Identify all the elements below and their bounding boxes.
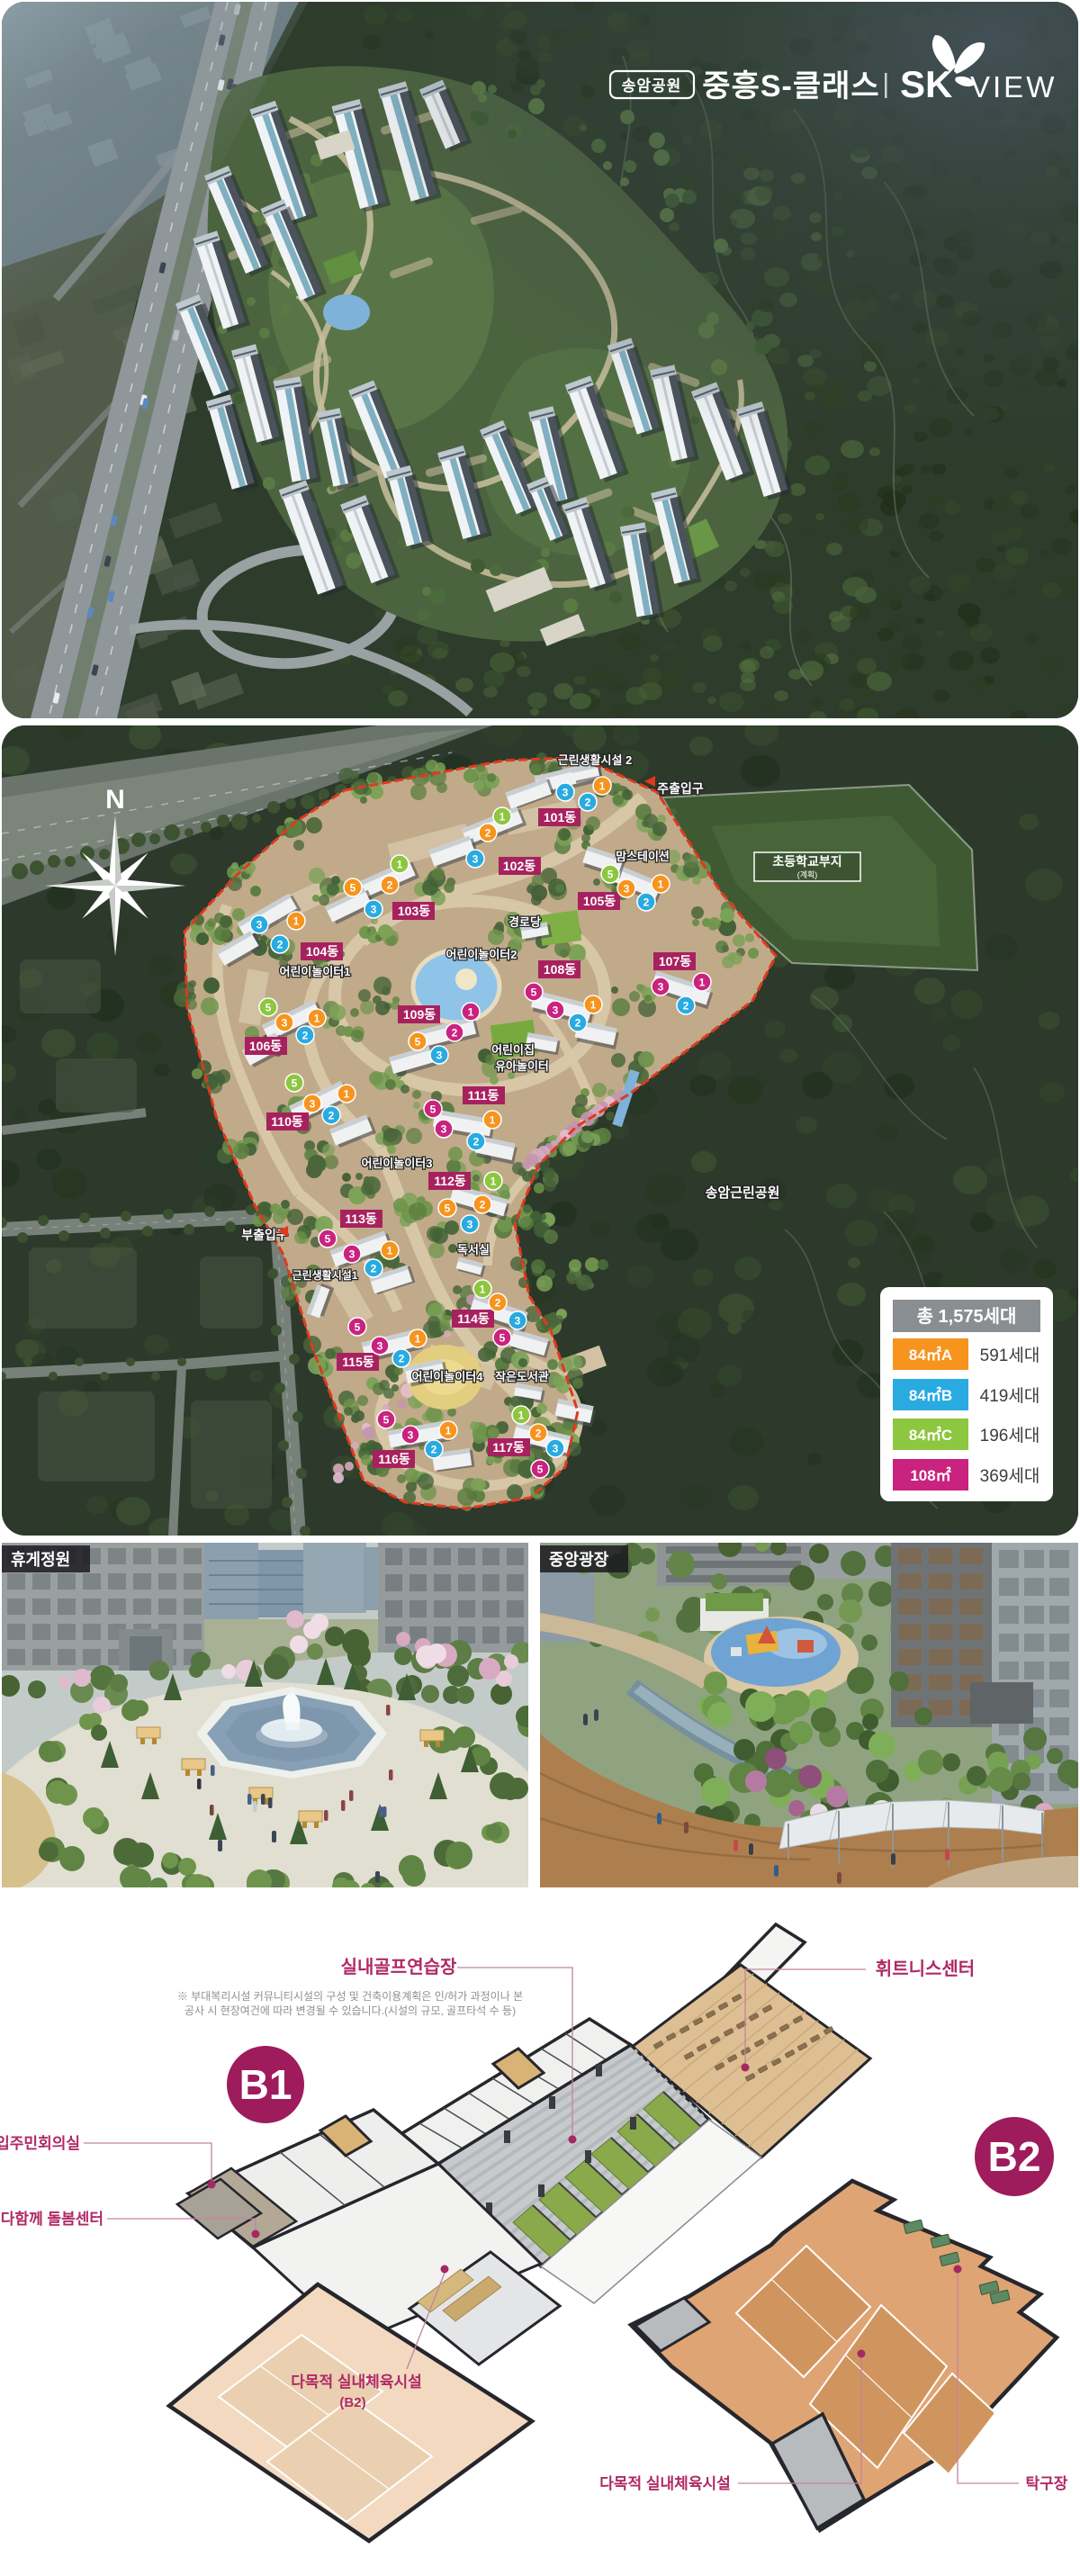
svg-text:2: 2 [277, 939, 283, 951]
svg-text:3: 3 [553, 1443, 559, 1455]
svg-text:※ 부대복리시설 커뮤니티시설의 구성 및 건축이용계획은: ※ 부대복리시설 커뮤니티시설의 구성 및 건축이용계획은 인/허가 과정이나 … [177, 1990, 523, 2003]
svg-text:다목적 실내체육시설: 다목적 실내체육시설 [599, 2475, 730, 2492]
svg-text:1: 1 [699, 977, 706, 989]
svg-text:110동: 110동 [271, 1114, 303, 1129]
svg-text:116동: 116동 [378, 1452, 410, 1466]
svg-text:591세대: 591세대 [980, 1346, 1040, 1365]
svg-text:2: 2 [585, 797, 591, 809]
svg-text:유아놀이터: 유아놀이터 [495, 1059, 549, 1073]
svg-text:108㎡: 108㎡ [910, 1466, 950, 1484]
svg-text:5: 5 [531, 986, 537, 999]
svg-text:105동: 105동 [583, 894, 616, 908]
svg-text:196세대: 196세대 [980, 1426, 1040, 1446]
svg-text:2: 2 [480, 1199, 486, 1211]
svg-text:2: 2 [399, 1353, 405, 1365]
svg-text:103동: 103동 [398, 904, 430, 918]
svg-text:2: 2 [643, 896, 650, 909]
svg-text:1: 1 [293, 915, 300, 928]
svg-text:5: 5 [355, 1321, 361, 1334]
svg-text:5: 5 [499, 1332, 506, 1345]
svg-text:1: 1 [518, 1410, 525, 1422]
svg-text:2: 2 [371, 1263, 377, 1275]
svg-text:B2: B2 [988, 2133, 1041, 2180]
svg-text:3: 3 [256, 919, 263, 932]
svg-text:3: 3 [562, 787, 569, 799]
svg-text:1: 1 [445, 1425, 452, 1437]
svg-text:어린이놀이터2: 어린이놀이터2 [446, 948, 517, 961]
svg-text:작은도서관: 작은도서관 [495, 1370, 549, 1383]
svg-text:휘트니스센터: 휘트니스센터 [876, 1959, 975, 1979]
svg-text:근린생활시설1: 근린생활시설1 [292, 1268, 358, 1282]
svg-text:3: 3 [624, 883, 630, 896]
svg-text:1: 1 [499, 811, 506, 824]
svg-text:2: 2 [575, 1017, 581, 1030]
svg-text:3: 3 [515, 1315, 521, 1328]
svg-text:중앙광장: 중앙광장 [549, 1551, 609, 1569]
svg-text:3: 3 [658, 981, 664, 994]
svg-text:3: 3 [553, 1004, 559, 1017]
svg-text:송암근린공원: 송암근린공원 [706, 1184, 780, 1201]
svg-text:2: 2 [431, 1444, 437, 1456]
svg-text:2: 2 [387, 879, 393, 892]
svg-text:5: 5 [537, 1464, 544, 1476]
svg-text:(B2): (B2) [339, 2395, 365, 2410]
svg-text:다목적 실내체육시설: 다목적 실내체육시설 [291, 2373, 421, 2391]
svg-text:근린생활시설 2: 근린생활시설 2 [558, 753, 633, 767]
svg-text:112동: 112동 [434, 1174, 466, 1188]
svg-text:2: 2 [473, 1136, 480, 1148]
svg-text:1: 1 [415, 1333, 421, 1346]
svg-text:2: 2 [452, 1027, 458, 1040]
svg-text:3: 3 [349, 1248, 355, 1261]
svg-text:경로당: 경로당 [508, 915, 541, 929]
svg-text:3: 3 [472, 853, 479, 866]
svg-text:5: 5 [430, 1103, 436, 1116]
svg-text:117동: 117동 [492, 1440, 525, 1455]
svg-text:1: 1 [397, 859, 403, 871]
svg-text:VIEW: VIEW [970, 70, 1057, 104]
svg-text:송암공원: 송암공원 [622, 77, 682, 95]
svg-text:3: 3 [408, 1429, 414, 1442]
svg-text:2: 2 [535, 1428, 542, 1440]
svg-text:84㎡C: 84㎡C [909, 1426, 952, 1444]
svg-text:5: 5 [415, 1036, 421, 1049]
svg-text:5: 5 [265, 1002, 272, 1014]
svg-text:1: 1 [387, 1245, 393, 1257]
svg-text:맘스테이션: 맘스테이션 [616, 850, 670, 863]
svg-text:(계획): (계획) [797, 869, 818, 879]
svg-text:독서실: 독서실 [457, 1243, 490, 1256]
svg-text:114동: 114동 [457, 1311, 490, 1326]
svg-text:108동: 108동 [544, 962, 576, 977]
svg-text:1: 1 [490, 1114, 496, 1127]
svg-text:3: 3 [377, 1340, 383, 1353]
svg-text:2: 2 [302, 1030, 309, 1042]
svg-text:1: 1 [590, 999, 597, 1012]
svg-text:104동: 104동 [306, 944, 338, 959]
svg-text:어린이집: 어린이집 [491, 1043, 535, 1057]
svg-text:다함께 돌봄센터: 다함께 돌봄센터 [1, 2210, 103, 2228]
svg-text:1: 1 [599, 780, 606, 793]
svg-text:입주민회의실: 입주민회의실 [0, 2135, 80, 2152]
svg-text:어린이놀이터3: 어린이놀이터3 [362, 1157, 433, 1170]
svg-text:102동: 102동 [503, 859, 535, 873]
svg-text:1: 1 [344, 1088, 350, 1101]
svg-text:어린이놀이터1: 어린이놀이터1 [280, 965, 351, 978]
svg-text:84㎡B: 84㎡B [909, 1386, 952, 1404]
svg-text:어린이놀이터4: 어린이놀이터4 [412, 1370, 484, 1383]
svg-text:휴게정원: 휴게정원 [11, 1551, 70, 1569]
svg-text:1: 1 [490, 1175, 497, 1188]
svg-text:초등학교부지: 초등학교부지 [772, 854, 841, 869]
svg-text:5: 5 [350, 882, 356, 895]
svg-text:107동: 107동 [659, 954, 691, 968]
svg-text:총 1,575세대: 총 1,575세대 [917, 1306, 1017, 1327]
svg-text:3: 3 [436, 1049, 443, 1062]
svg-text:3: 3 [282, 1017, 288, 1030]
svg-text:5: 5 [383, 1414, 390, 1427]
svg-text:101동: 101동 [544, 810, 576, 824]
svg-text:탁구장: 탁구장 [1026, 2475, 1068, 2492]
svg-text:5: 5 [607, 869, 614, 881]
svg-text:3: 3 [310, 1098, 316, 1111]
svg-text:3: 3 [441, 1123, 447, 1136]
svg-text:실내골프연습장: 실내골프연습장 [341, 1957, 457, 1977]
svg-text:2: 2 [683, 1000, 689, 1013]
svg-text:주출입구: 주출입구 [657, 781, 704, 796]
svg-text:3: 3 [371, 904, 377, 916]
svg-text:2: 2 [495, 1297, 501, 1310]
svg-text:84㎡A: 84㎡A [909, 1346, 952, 1364]
svg-text:B1: B1 [239, 2061, 292, 2108]
svg-text:SK: SK [900, 63, 952, 105]
svg-text:106동: 106동 [249, 1039, 282, 1053]
svg-text:공사 시 현장여건에 따라 변경될 수 있습니다.(시설의: 공사 시 현장여건에 따라 변경될 수 있습니다.(시설의 규모, 골프타석 수… [184, 2004, 516, 2017]
svg-text:1: 1 [480, 1283, 486, 1296]
svg-text:5: 5 [325, 1233, 331, 1246]
svg-text:111동: 111동 [468, 1088, 499, 1103]
svg-text:115동: 115동 [342, 1355, 374, 1369]
svg-text:2: 2 [485, 827, 491, 840]
svg-text:1: 1 [468, 1006, 474, 1019]
svg-text:중흥S-클래스: 중흥S-클래스 [702, 69, 879, 104]
svg-text:1: 1 [658, 878, 664, 891]
svg-text:5: 5 [445, 1202, 451, 1215]
svg-text:3: 3 [467, 1219, 473, 1231]
svg-text:419세대: 419세대 [980, 1386, 1040, 1406]
svg-text:5: 5 [292, 1077, 298, 1090]
svg-text:109동: 109동 [403, 1007, 436, 1022]
svg-text:N: N [105, 785, 125, 815]
svg-text:2: 2 [328, 1110, 335, 1122]
svg-text:1: 1 [314, 1013, 320, 1025]
svg-text:369세대: 369세대 [980, 1466, 1040, 1486]
svg-text:113동: 113동 [345, 1211, 377, 1226]
